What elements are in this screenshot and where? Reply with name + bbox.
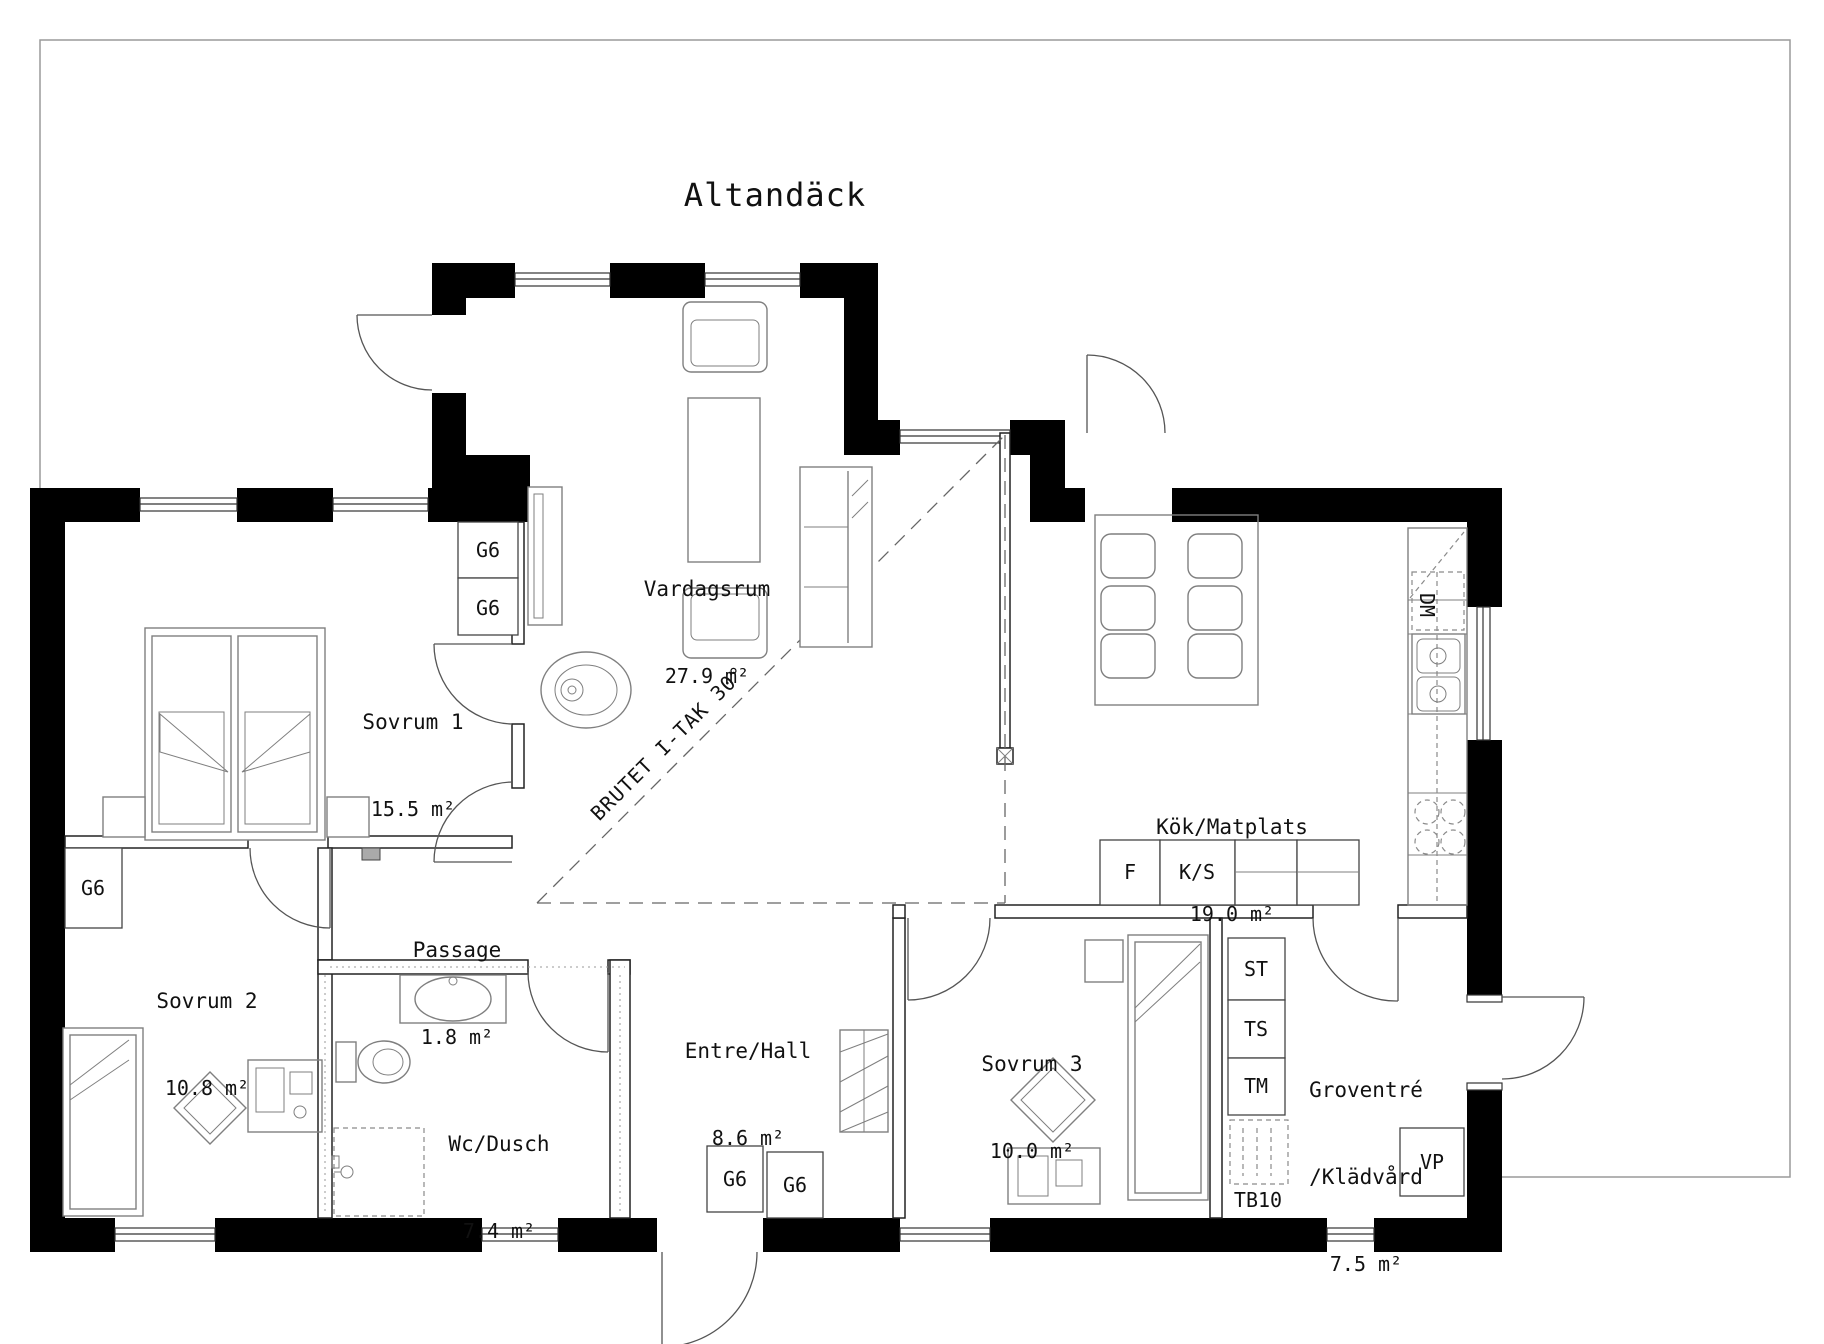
room-area: 10.0 m² — [922, 1137, 1142, 1166]
nightstand — [1085, 940, 1123, 982]
wardrobe-label: G6 — [63, 876, 123, 900]
room-name: Sovrum 2 — [97, 987, 317, 1016]
room-label-kok-matplats: Kök/Matplats 19.0 m² — [1122, 755, 1342, 958]
room-area: 15.5 m² — [303, 795, 523, 824]
room-name: Kök/Matplats — [1122, 813, 1342, 842]
room-name: Wc/Dusch — [389, 1130, 609, 1159]
wardrobe-label: G6 — [705, 1167, 765, 1191]
room-area: 7.5 m² — [1256, 1250, 1476, 1279]
room-label-sovrum2: Sovrum 2 10.8 m² — [97, 929, 317, 1132]
wardrobe-label: G6 — [765, 1173, 825, 1197]
st-cabinet-label: ST — [1226, 957, 1286, 981]
cooktop — [1415, 800, 1465, 854]
room-label-sovrum3: Sovrum 3 10.0 m² — [922, 992, 1142, 1195]
freezer-label: F — [1100, 860, 1160, 884]
tm-cabinet-label: TM — [1226, 1074, 1286, 1098]
room-label-entre-hall: Entre/Hall 8.6 m² — [638, 979, 858, 1182]
room-area: 8.6 m² — [638, 1124, 858, 1153]
room-name: Groventré — [1256, 1076, 1476, 1105]
room-area: 1.8 m² — [347, 1023, 567, 1052]
ts-cabinet-label: TS — [1226, 1017, 1286, 1041]
floor-plan-drawing — [0, 0, 1824, 1344]
dishwasher-label: DM — [1415, 575, 1439, 635]
heat-pump-label: VP — [1402, 1150, 1462, 1174]
room-name: Sovrum 3 — [922, 1050, 1142, 1079]
room-name: Sovrum 1 — [303, 708, 523, 737]
room-label-sovrum1: Sovrum 1 15.5 m² — [303, 650, 523, 853]
tv-bench — [528, 487, 562, 625]
sovrum1-double-bed — [145, 628, 325, 840]
deck-label: Altandäck — [655, 176, 895, 214]
room-name: Passage — [347, 936, 567, 965]
room-label-wc-dusch: Wc/Dusch 7.4 m² — [389, 1072, 609, 1275]
room-name: Vardagsrum — [597, 575, 817, 604]
dining-chairs — [1101, 534, 1242, 678]
room-name: Entre/Hall — [638, 1037, 858, 1066]
nightstand — [103, 797, 145, 837]
wardrobe-label: G6 — [458, 596, 518, 620]
armchair — [683, 302, 767, 372]
room-area: 7.4 m² — [389, 1217, 609, 1246]
room-area: 19.0 m² — [1122, 900, 1342, 929]
kitchen-sink — [1412, 634, 1465, 714]
tb10-label: TB10 — [1218, 1188, 1298, 1212]
floor-plan: Altandäck Vardagsrum 27.9 m² Sovrum 1 15… — [0, 0, 1824, 1344]
room-area: 10.8 m² — [97, 1074, 317, 1103]
wardrobe-label: G6 — [458, 538, 518, 562]
fridge-pantry-label: K/S — [1167, 860, 1227, 884]
room-label-passage: Passage 1.8 m² — [347, 878, 567, 1081]
